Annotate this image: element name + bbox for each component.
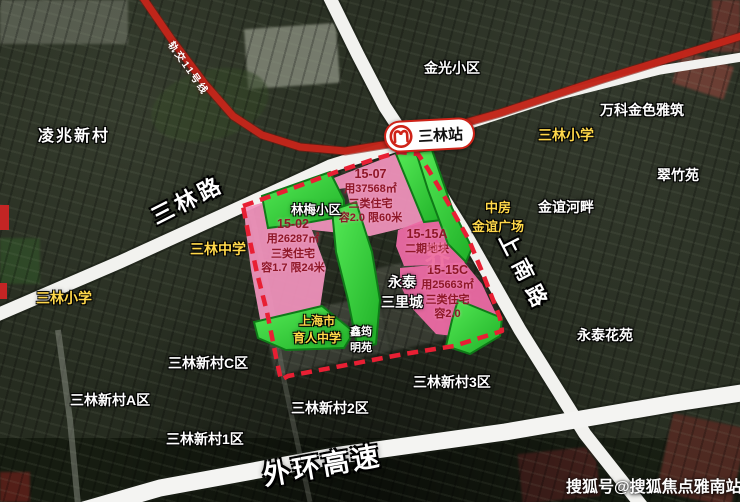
label-cuizhuyuan: 翠竹苑 <box>657 165 699 185</box>
label-sanlin-xincun-a: 三林新村A区 <box>70 390 150 410</box>
minor-road-left <box>58 330 78 502</box>
label-sanlin-xincun-2: 三林新村2区 <box>291 398 369 418</box>
label-yuren-zhongxue: 上海市 育人中学 <box>289 312 345 346</box>
label-sanlin-zhongxue: 三林中学 <box>190 239 246 259</box>
sohu-watermark: 搜狐号@搜狐焦点雅南站 <box>566 473 740 497</box>
parcel-15-02-text: 15-02 用26287㎡ 三类住宅 容1.7 限24米 <box>243 216 343 275</box>
label-sanlin-xiaoxue-east: 三林小学 <box>538 125 594 145</box>
label-zhongfang-jinyi-guangchang: 中房 金谊广场 <box>464 197 532 235</box>
metro-station-name: 三林站 <box>417 123 463 146</box>
label-jinyi-hepan: 金谊河畔 <box>538 197 594 217</box>
shanghai-metro-logo-icon <box>388 124 413 149</box>
metro-station-badge: 三林站 <box>383 117 476 154</box>
satellite-map: 轨交11号线 三林站 三林路 上南路 外环高速 15-07 用37568㎡ 三类… <box>0 0 740 502</box>
label-xinyun-mingyuan: 鑫筠 明苑 <box>342 323 380 355</box>
faint-watermark: 界 <box>422 235 452 275</box>
label-lingzhao-xincun: 凌兆新村 <box>38 122 110 146</box>
label-sanlin-xincun-3: 三林新村3区 <box>413 372 491 392</box>
label-sanlin-xincun-c: 三林新村C区 <box>168 353 248 373</box>
label-sanlin-xiaoxue-west: 三林小学 <box>36 288 92 308</box>
red-sliver-2 <box>0 283 7 299</box>
red-sliver-1 <box>0 205 9 230</box>
label-sanlin-xincun-1: 三林新村1区 <box>166 429 244 449</box>
label-yongtai-sanlicheng: 永泰 三里城 <box>374 272 430 312</box>
label-linmei-xiaoqu: 林梅小区 <box>291 199 341 218</box>
label-jinguang-xiaoqu: 金光小区 <box>424 58 480 78</box>
map-shapes-layer <box>0 0 740 502</box>
label-vanke-jinse-yazhu: 万科金色雅筑 <box>600 100 684 120</box>
label-yongtai-huayuan: 永泰花苑 <box>577 325 633 345</box>
